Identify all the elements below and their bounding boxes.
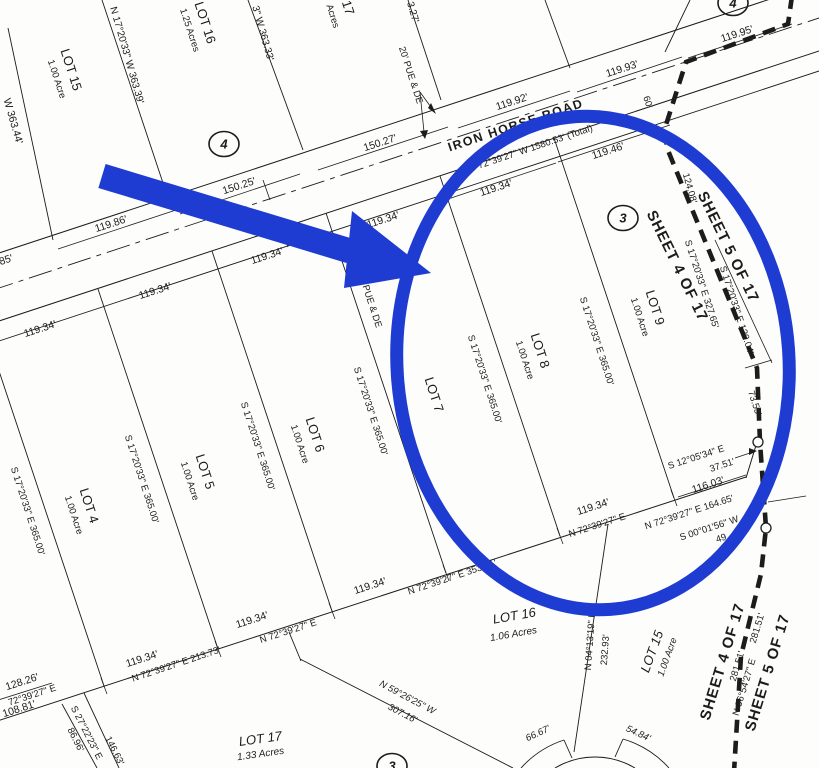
bearing-rear78: N 72°39'27" E	[567, 511, 627, 540]
lot7-name: LOT 7	[422, 375, 447, 414]
bearing-lot4-5: S 17°20'33" E 365.00'	[122, 434, 161, 525]
dim-66-67: 66.67'	[524, 723, 553, 744]
block-marker-3-bottom-number: 3	[388, 759, 396, 768]
block-marker-3-right-number: 3	[619, 211, 627, 226]
dim-363-44: W 363.44'	[1, 97, 25, 145]
dim-119-46: 119.46'	[590, 140, 625, 162]
bearing-lot7-8: S 17°20'33" E 365.00'	[465, 334, 504, 425]
bearing-lot8-9: S 17°20'33" E 365.00'	[577, 296, 616, 387]
monument-circle	[753, 437, 763, 447]
dim-37-51: 37.51'	[708, 456, 736, 474]
dim-119-34-lot8: 119.34'	[478, 177, 513, 199]
block-marker-3-right: 3	[608, 206, 638, 231]
dim-119-34-rear78: 119.34'	[575, 496, 610, 518]
block-marker-4-left-number: 4	[219, 137, 228, 152]
pue-de-north: 20' PUE & DE	[396, 45, 425, 105]
lot17-north-area-partial: Acres	[323, 3, 341, 30]
dim-54-84: 54.84'	[624, 723, 653, 744]
monument-circle	[761, 523, 771, 533]
lot17-north-name-partial: 17	[339, 0, 358, 17]
dim-119-34-rear67: 119.34'	[352, 575, 387, 597]
highlight-annotation	[102, 103, 806, 623]
bearing-lot3-4: S 17°20'33" E 365.00'	[8, 466, 47, 557]
lot16-south-area: 1.06 Acres	[489, 625, 538, 644]
bearing-363-33: 3" W 363.33'	[249, 5, 275, 63]
block-marker-4-left: 4	[209, 132, 239, 157]
dim-232-93: 232.93'	[599, 634, 612, 666]
dim-3-27: 3.27'	[404, 1, 420, 25]
bearing-n04-13-19: N 04°13'19" E	[583, 611, 598, 671]
dim-119-34-rear56: 119.34'	[234, 609, 269, 631]
dim-150-27: 150.27'	[362, 132, 398, 154]
bottom-lot-lines	[62, 524, 608, 768]
dim-119-34-front56: 119.34'	[249, 245, 284, 267]
highlight-circle	[380, 103, 806, 623]
dim-146-63: 146.63'	[102, 735, 126, 768]
bearing-lot5-6: S 17°20'33" E 365.00'	[238, 401, 277, 492]
bearing-rear56: N 72°39'27" E	[258, 617, 318, 646]
dim-60: 60'	[640, 95, 654, 110]
block-marker-4-topright-number: 4	[728, 0, 737, 11]
lot16-south-name: LOT 16	[492, 604, 538, 626]
plat-screenshot: W 363.44'LOT 151.00 AcreN 17°20'33" W 36…	[0, 0, 819, 768]
dim-119-34-front34: 119.34'	[22, 318, 57, 340]
dim-73-53: 73.53'	[745, 389, 763, 417]
dim-85-partial: 85'	[0, 252, 14, 268]
plat-map-canvas: W 363.44'LOT 151.00 AcreN 17°20'33" W 36…	[0, 0, 819, 768]
bearing-363-39: N 17°20'33" W 363.39'	[107, 6, 145, 106]
block-marker-3-bottom: 3	[377, 754, 407, 768]
dim-116-03: 116.03'	[690, 474, 725, 496]
dim-119-34-front45: 119.34'	[137, 280, 172, 302]
bearing-lot6-7: S 17°20'33" E 365.00'	[351, 366, 390, 457]
